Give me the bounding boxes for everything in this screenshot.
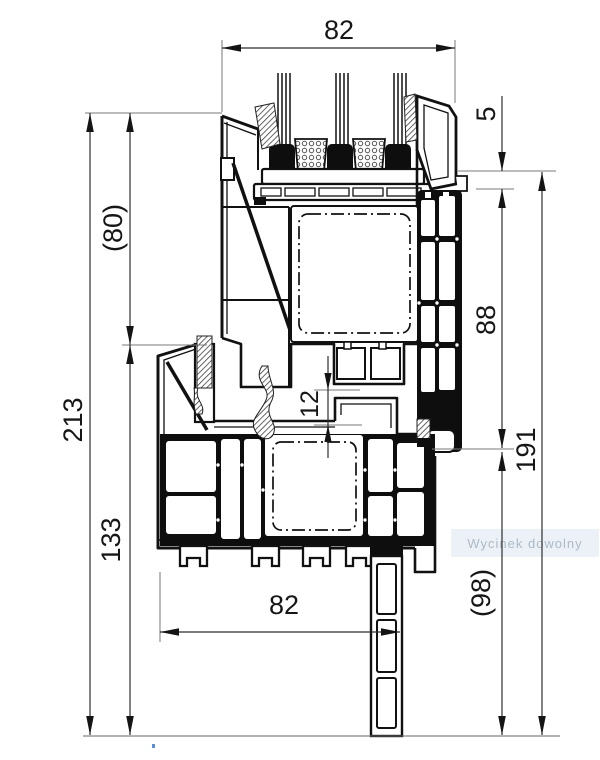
dim-label-12: 12 [296, 390, 324, 418]
dim-label-88: 88 [471, 305, 501, 335]
dim-label-top-82: 82 [324, 15, 354, 45]
sill-extension-profile [370, 546, 403, 736]
frame-steel-chamber [265, 435, 363, 536]
sash-chamber [371, 348, 400, 379]
dim-label-98: (98) [466, 569, 496, 617]
dim-label-bottom-82: 82 [269, 590, 299, 620]
dim-label-80: (80) [98, 204, 128, 252]
glazing-gasket-right [404, 94, 417, 142]
sash-chamber [337, 348, 365, 379]
glazing-spacer-block [295, 139, 327, 171]
dim-label-133: 133 [96, 517, 126, 562]
dim-label-5: 5 [471, 106, 501, 121]
window-section-drawing: Wycinek dowolny 82 213 [0, 0, 600, 760]
right-seal-gasket [417, 419, 430, 441]
sash-steel-chamber [291, 206, 418, 342]
dim-label-191: 191 [511, 427, 541, 472]
scan-artifact-dot [152, 744, 155, 748]
watermark-text: Wycinek dowolny [467, 536, 582, 551]
dim-label-213: 213 [58, 397, 88, 442]
hardware-groove [221, 158, 234, 180]
glazing-bridge [254, 169, 432, 205]
overlap-gasket [197, 336, 212, 388]
glazing-spacer-block [353, 139, 385, 171]
frame-right-column [417, 190, 462, 452]
watermark: Wycinek dowolny [451, 529, 599, 557]
